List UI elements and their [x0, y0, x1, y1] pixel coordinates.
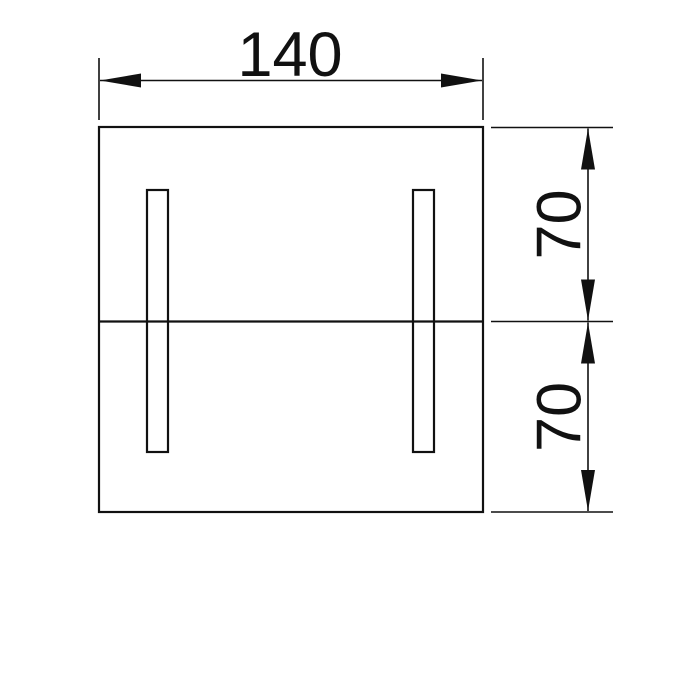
- arrowhead-down-icon: [581, 280, 595, 321]
- dimension-upper-height: 70: [491, 128, 613, 322]
- dimension-width-label: 140: [237, 20, 342, 90]
- dimension-lower-height: 70: [491, 323, 613, 513]
- dimension-width: 140: [99, 20, 483, 120]
- arrowhead-right-icon: [441, 74, 482, 88]
- arrowhead-up-icon: [581, 129, 595, 170]
- technical-drawing-canvas: 140 70 70: [0, 0, 694, 694]
- arrowhead-down-icon: [581, 470, 595, 511]
- drawing-svg: 140 70 70: [0, 0, 694, 694]
- arrowhead-left-icon: [100, 74, 141, 88]
- part-geometry: [99, 127, 483, 512]
- plate-outline: [99, 127, 483, 512]
- arrowhead-up-icon: [581, 323, 595, 364]
- dimension-lower-height-label: 70: [525, 382, 595, 452]
- dimension-upper-height-label: 70: [525, 189, 595, 259]
